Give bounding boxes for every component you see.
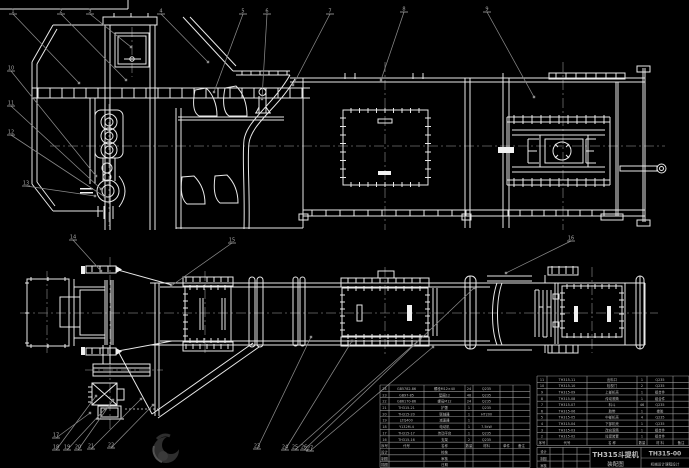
bom-cell: 螺栓M12×40: [434, 386, 455, 391]
balloon-number: 21: [88, 444, 94, 450]
bom-cell: 检视门: [607, 383, 618, 388]
signature-label: 审核: [540, 463, 547, 468]
balloon-number: 6: [265, 9, 268, 15]
bom-cell: Q235: [655, 416, 664, 420]
bom-cell: 传动滚筒: [605, 396, 619, 401]
bom-cell: 4: [641, 416, 643, 420]
bom-cell: TH315-08: [558, 397, 576, 401]
bom-cell: GB97-85: [399, 393, 414, 397]
bom-cell: 减速器: [439, 418, 450, 423]
bom-cell: TH315-17: [397, 431, 415, 435]
bom-cell: 2: [468, 438, 470, 442]
balloon-number: 15: [229, 238, 235, 244]
bom-cell: GB6170-86: [397, 400, 416, 404]
bom-cell: 1: [641, 409, 643, 413]
bom-cell: TH315-02: [558, 435, 576, 439]
balloon-number: 24: [282, 445, 288, 451]
bom-cell: 备注: [678, 440, 685, 445]
balloon-number: 27: [307, 446, 313, 452]
bom-cell: TH315-03: [558, 428, 576, 432]
bom-cell: 描图: [381, 462, 388, 467]
title-drawing-no: TH315-00: [649, 451, 681, 458]
bom-table-right: 11TH315-11出料口1Q23510TH315-10检视门2Q2359TH3…: [537, 376, 689, 445]
bom-cell: 7.5kW: [481, 425, 492, 429]
bom-cell: TH315-06: [558, 409, 576, 413]
bom-cell: 垫圈12: [439, 392, 450, 397]
title-drawing-type: 装配图: [607, 460, 624, 468]
bom-cell: 1: [468, 406, 470, 410]
bom-table-left: 24GB5782-86螺栓M12×4024Q23523GB97-85垫圈1248…: [380, 385, 530, 468]
bom-cell: Q235: [482, 438, 491, 442]
bom-cell: 下部机壳: [605, 421, 619, 426]
bom-cell: 21: [382, 406, 386, 410]
balloon-number: 23: [254, 444, 260, 450]
bom-cell: 20: [382, 412, 386, 416]
balloon-number: 9: [485, 7, 488, 13]
bom-cell: 组合件: [655, 434, 666, 439]
title-org: 机械设计课程设计: [651, 462, 680, 467]
balloon-number: 19: [64, 445, 70, 451]
balloon-number: 12: [8, 130, 14, 136]
balloon-number: 20: [75, 445, 81, 451]
bom-cell: 材 料: [656, 440, 664, 445]
bom-cell: 校核: [441, 449, 448, 454]
bom-cell: 传动平台: [438, 430, 452, 435]
bom-cell: 日期: [441, 462, 448, 467]
title-block: TH315斗提机 装配图 TH315-00 机械设计课程设计 设计制图审核: [537, 447, 689, 468]
signature-label: 设计: [540, 449, 547, 454]
handle-slots: [80, 147, 611, 355]
bom-cell: 1: [468, 425, 470, 429]
plan-view: [27, 266, 645, 419]
centerlines: [20, 27, 665, 430]
bom-cell: 单件: [503, 443, 510, 448]
bom-cell: Q235: [655, 403, 664, 407]
bom-cell: 出料口: [607, 377, 617, 382]
bom-cell: 46: [640, 403, 644, 407]
balloon-number: 14: [70, 235, 76, 241]
bom-cell: 电动机: [439, 424, 450, 429]
bom-cell: 名 称: [608, 440, 616, 445]
bom-cell: 备注: [518, 443, 525, 448]
bom-cell: 24: [467, 387, 471, 391]
balloon-number: 1: [11, 9, 14, 15]
bom-cell: 拉紧装置: [605, 434, 619, 439]
bom-cell: TH315-20: [397, 412, 415, 416]
bom-cell: 11: [540, 378, 544, 382]
bom-cell: 上部机壳: [605, 390, 619, 395]
bucket-shapes: [181, 86, 247, 204]
bom-cell: TH315-04: [558, 422, 576, 426]
bom-cell: 1: [641, 378, 643, 382]
bom-cell: 9: [541, 391, 543, 395]
bom-cell: 制图: [381, 456, 388, 461]
bom-cell: Y132M-4: [399, 425, 414, 429]
bom-cell: Q235: [655, 378, 664, 382]
signature-label: 制图: [540, 456, 546, 461]
balloon-number: 25: [292, 445, 298, 451]
bom-cell: Q235: [482, 393, 491, 397]
balloon-number: 17: [53, 433, 59, 439]
bom-cell: 17: [382, 431, 386, 435]
bom-cell: 1: [641, 428, 643, 432]
bom-cell: 1: [641, 391, 643, 395]
bom-cell: 代号: [403, 443, 410, 448]
bom-cell: 8: [541, 397, 543, 401]
bom-cell: 支架: [441, 437, 448, 442]
bom-cell: 3: [541, 428, 543, 432]
balloon-number: 3: [88, 9, 91, 15]
bom-cell: 7: [541, 403, 543, 407]
bom-cell: Q235: [655, 422, 664, 426]
bom-cell: 1: [641, 435, 643, 439]
bom-cell: TH315-11: [558, 378, 576, 382]
bom-cell: TH315-07: [558, 403, 576, 407]
balloon-number: 5: [241, 9, 244, 15]
balloon-number: 2: [59, 9, 62, 15]
bom-cell: 组合件: [655, 390, 666, 395]
bom-cell: 审核: [441, 456, 448, 461]
cad-drawing: 1234567891011121314151617181920212223242…: [0, 0, 689, 468]
bom-cell: 5: [541, 416, 543, 420]
bom-cell: Q235: [482, 387, 491, 391]
balloon-number: 7: [328, 9, 331, 15]
bom-cell: 中部机壳: [605, 415, 619, 420]
bom-cell: 序号: [381, 443, 388, 448]
bom-cell: 2: [641, 384, 643, 388]
bom-cell: 联轴器: [439, 411, 450, 416]
bom-cell: 橡胶: [657, 408, 664, 413]
title-product: TH315斗提机: [592, 450, 638, 459]
bom-cell: 组合件: [655, 396, 666, 401]
bom-cell: 23: [382, 393, 386, 397]
bom-cell: TH315-09: [558, 391, 576, 395]
bom-cell: Q235: [482, 431, 491, 435]
bom-cell: 22: [382, 400, 386, 404]
bom-cell: 16: [382, 438, 386, 442]
bom-cell: Q235: [482, 406, 491, 410]
bom-cell: 1: [468, 412, 470, 416]
bom-cell: GB5782-86: [397, 387, 416, 391]
bom-cell: 10: [540, 384, 544, 388]
bom-cell: TH315-21: [397, 406, 415, 410]
bom-cell: 1: [468, 419, 470, 423]
bom-cell: 料斗: [609, 402, 616, 407]
bom-cell: 螺母M12: [437, 399, 451, 404]
bom-cell: 数量: [466, 443, 473, 448]
bom-cell: 6: [541, 409, 543, 413]
bom-cell: 护罩: [441, 405, 448, 410]
balloon-number: 13: [23, 181, 29, 187]
bom-cell: HT200: [481, 412, 492, 416]
bom-cell: JZQ400: [399, 419, 412, 423]
balloon-number: 8: [402, 7, 405, 13]
bom-cell: 组合件: [655, 427, 666, 432]
bom-cell: Q235: [482, 400, 491, 404]
bom-cell: 24: [382, 387, 386, 391]
bom-cell: 代号: [564, 440, 571, 445]
bom-cell: 1: [641, 422, 643, 426]
bom-cell: TH315-05: [558, 416, 576, 420]
balloon-number: 22: [108, 443, 114, 449]
bom-cell: 胶带: [609, 408, 616, 413]
balloon-number: 16: [568, 236, 574, 242]
bom-cell: 2: [541, 435, 543, 439]
bom-cell: 名称: [441, 443, 448, 448]
bom-cell: 24: [467, 400, 471, 404]
balloon-number: 11: [8, 101, 14, 107]
balloon-number: 18: [53, 445, 59, 451]
bom-cell: 19: [382, 419, 386, 423]
bom-cell: 4: [541, 422, 543, 426]
bom-cell: 1: [468, 431, 470, 435]
balloon-number: 4: [159, 9, 162, 15]
bom-cell: 设计: [381, 449, 388, 454]
bom-cell: TH315-10: [558, 384, 576, 388]
bom-cell: 1: [641, 397, 643, 401]
bom-cell: TH315-16: [397, 438, 415, 442]
balloon-number: 10: [8, 66, 14, 72]
watermark-logo: [153, 435, 180, 463]
bom-cell: Q235: [655, 384, 664, 388]
front-view: [0, 0, 666, 230]
bom-cell: 18: [382, 425, 386, 429]
bom-cell: 改向滚筒: [605, 427, 619, 432]
bom-cell: 序号: [539, 440, 546, 445]
bom-cell: 数量: [639, 440, 646, 445]
bom-cell: 材料: [483, 443, 490, 448]
bom-cell: 48: [467, 393, 471, 397]
